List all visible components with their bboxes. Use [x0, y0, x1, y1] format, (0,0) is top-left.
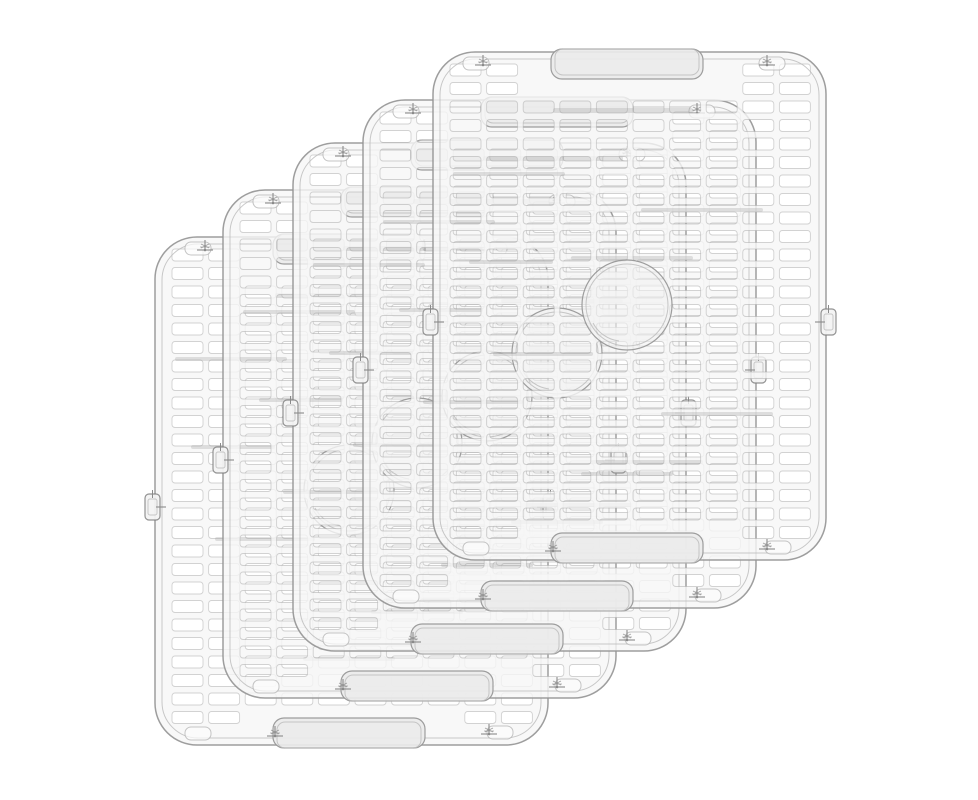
sink-mats-illustration [0, 0, 978, 800]
sink-mat-1 [423, 49, 836, 563]
product-photo-sink-mats [0, 0, 978, 800]
